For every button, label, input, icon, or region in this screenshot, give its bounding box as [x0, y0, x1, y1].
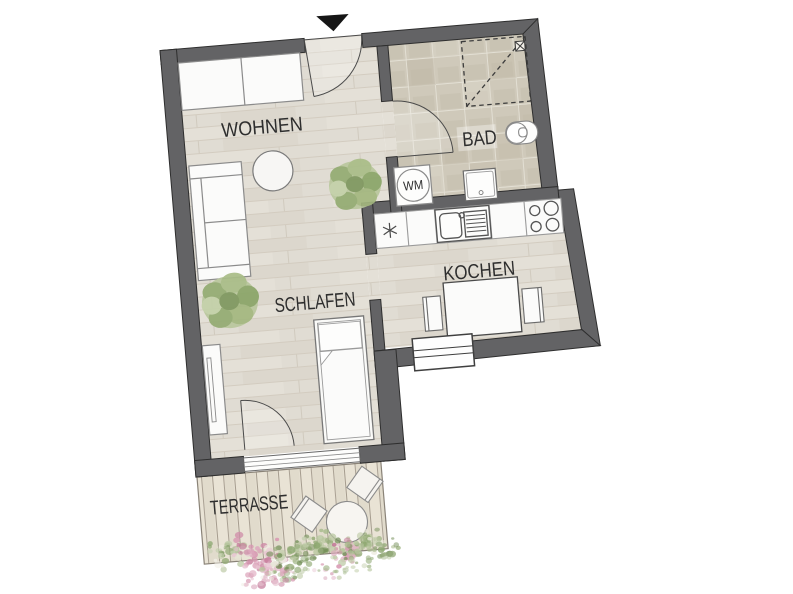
svg-text:BAD: BAD	[461, 127, 497, 152]
svg-text:WM: WM	[403, 177, 424, 194]
